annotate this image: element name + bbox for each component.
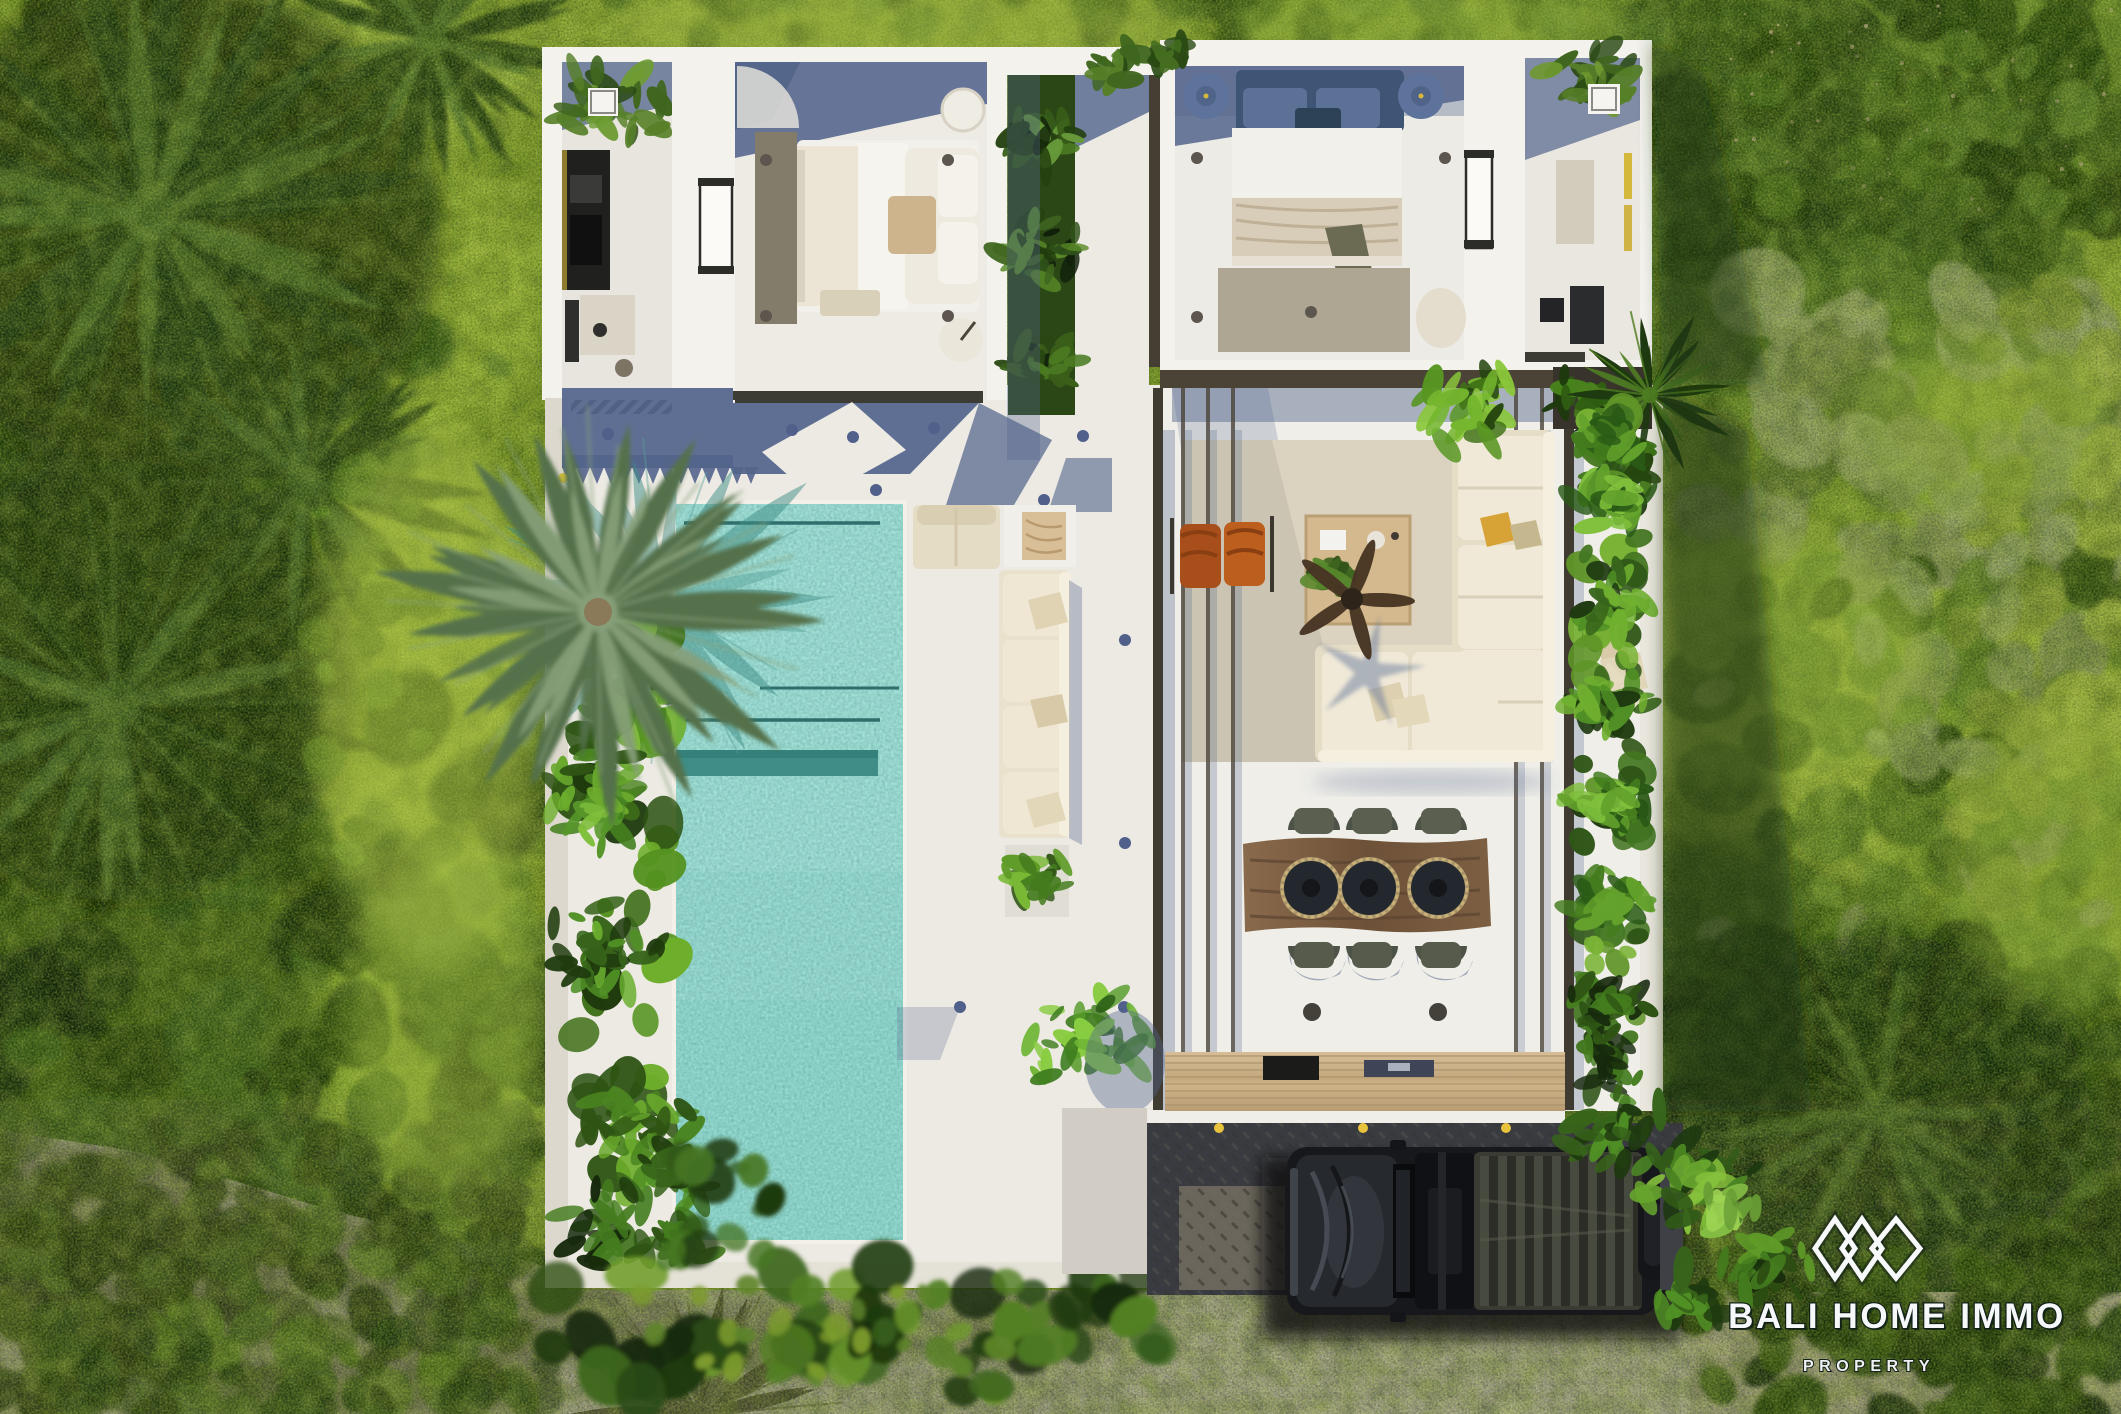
svg-text:BALI HOME IMMO: BALI HOME IMMO [1728, 1297, 2066, 1336]
svg-text:PROPERTY: PROPERTY [1803, 1358, 1935, 1375]
